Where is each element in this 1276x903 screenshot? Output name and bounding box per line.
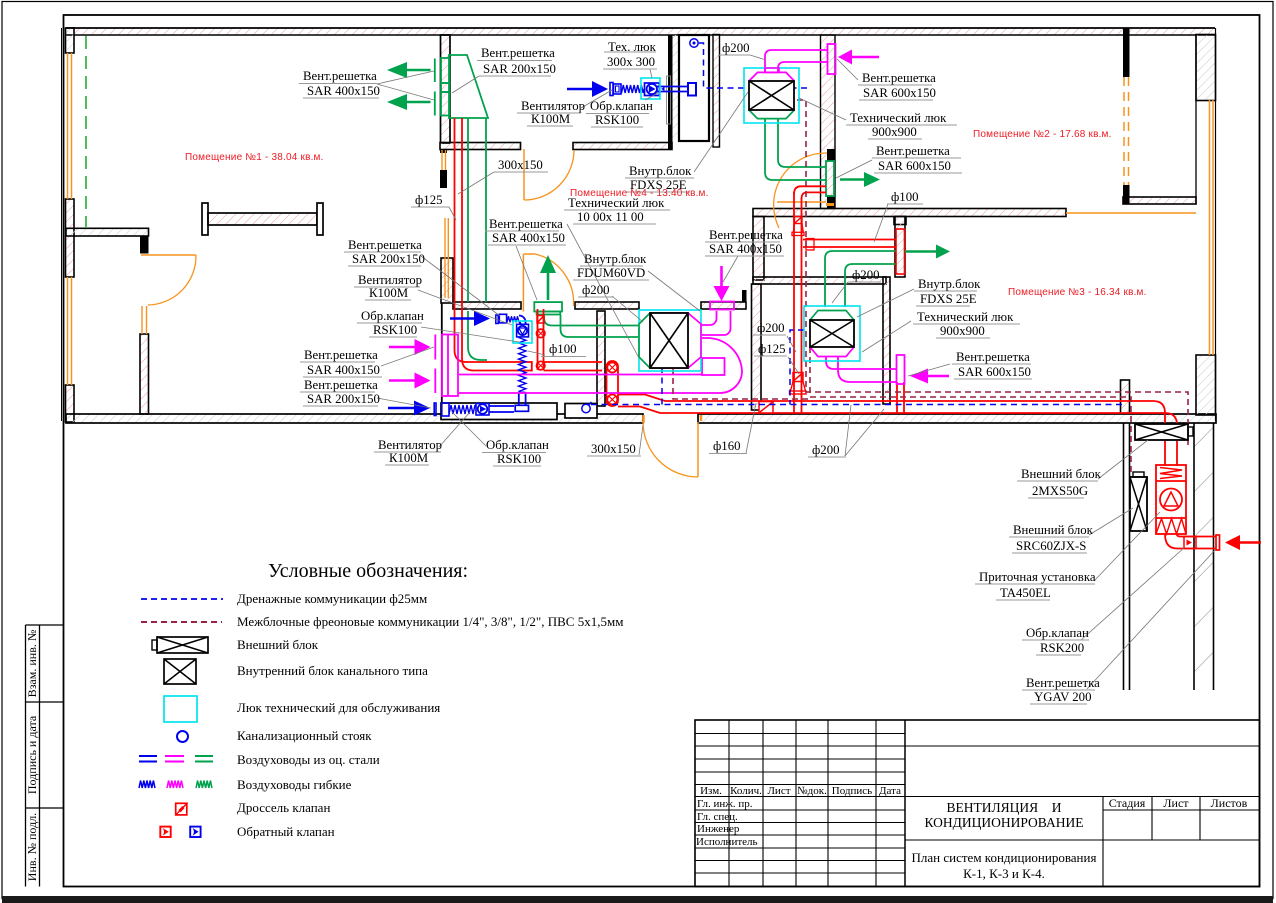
svg-text:RSK200: RSK200 <box>1040 641 1084 655</box>
svg-text:Вент.решетка: Вент.решетка <box>489 217 563 231</box>
svg-text:Внешний блок: Внешний блок <box>1021 467 1102 481</box>
svg-text:Вент.решетка: Вент.решетка <box>481 46 555 60</box>
svg-text:ВЕНТИЛЯЦИЯ И: ВЕНТИЛЯЦИЯ И <box>947 800 1062 815</box>
svg-text:Вент.решетка: Вент.решетка <box>304 348 378 362</box>
svg-text:ф125: ф125 <box>758 342 786 356</box>
svg-text:Вент.решетка: Вент.решетка <box>709 228 783 242</box>
svg-text:Технический люк: Технический люк <box>850 111 947 125</box>
svg-text:SAR 400x150: SAR 400x150 <box>709 242 782 256</box>
svg-text:Вент.решетка: Вент.решетка <box>1026 676 1100 690</box>
svg-text:RSK100: RSK100 <box>497 452 541 466</box>
svg-text:Помещение №1 - 38.04 кв.м.: Помещение №1 - 38.04 кв.м. <box>185 152 324 163</box>
svg-text:Межблочные фреоновые коммуника: Межблочные фреоновые коммуникации 1/4", … <box>237 614 623 629</box>
svg-text:ф200: ф200 <box>757 321 785 335</box>
svg-text:Внутр.блок: Внутр.блок <box>584 252 647 266</box>
svg-text:Технический люк: Технический люк <box>917 310 1014 324</box>
svg-text:Люк технический для обслуживан: Люк технический для обслуживания <box>237 700 440 715</box>
svg-text:Вентилятор: Вентилятор <box>358 273 422 287</box>
svg-text:YGAV 200: YGAV 200 <box>1034 690 1091 704</box>
svg-text:ф100: ф100 <box>549 342 577 356</box>
svg-text:300x150: 300x150 <box>498 158 543 172</box>
svg-text:Вент.решетка: Вент.решетка <box>956 350 1030 364</box>
svg-text:Вент.решетка: Вент.решетка <box>304 378 378 392</box>
svg-text:SAR 600x150: SAR 600x150 <box>878 159 951 173</box>
svg-text:900x900: 900x900 <box>940 324 985 338</box>
svg-text:К100М: К100М <box>369 286 408 300</box>
svg-text:ф100: ф100 <box>891 190 919 204</box>
svg-text:SAR 600x150: SAR 600x150 <box>958 365 1031 379</box>
svg-text:10 00x 11 00: 10 00x 11 00 <box>577 210 644 224</box>
svg-text:Подпись: Подпись <box>832 785 872 797</box>
svg-text:Помещение №2 - 17.68 кв.м.: Помещение №2 - 17.68 кв.м. <box>973 129 1112 140</box>
svg-text:Дата: Дата <box>879 785 901 797</box>
svg-text:Листов: Листов <box>1211 796 1248 810</box>
svg-text:Изм.: Изм. <box>700 785 722 797</box>
svg-text:План систем кондиционирования: План систем кондиционирования <box>912 850 1097 865</box>
svg-text:SAR 400x150: SAR 400x150 <box>492 231 565 245</box>
svg-text:TA450EL: TA450EL <box>1000 586 1051 600</box>
svg-text:Воздуховоды гибкие: Воздуховоды гибкие <box>237 777 352 792</box>
svg-text:Лист: Лист <box>767 785 790 797</box>
svg-text:К100М: К100М <box>531 112 570 126</box>
svg-text:Вент.решетка: Вент.решетка <box>303 69 377 83</box>
svg-text:№док.: №док. <box>797 785 827 797</box>
svg-text:ф125: ф125 <box>415 193 443 207</box>
svg-text:300x 300: 300x 300 <box>607 55 655 69</box>
svg-text:Канализационный стояк: Канализационный стояк <box>237 728 372 743</box>
svg-text:Внутренний блок канального тип: Внутренний блок канального типа <box>237 663 428 678</box>
svg-text:ф200: ф200 <box>852 268 880 282</box>
svg-text:Обр.клапан: Обр.клапан <box>590 99 653 113</box>
svg-text:Стадия: Стадия <box>1109 796 1146 810</box>
svg-text:SAR 400x150: SAR 400x150 <box>307 363 380 377</box>
svg-text:FDUM60VD: FDUM60VD <box>577 266 645 280</box>
svg-text:RSK100: RSK100 <box>595 113 639 127</box>
svg-text:Вент.решетка: Вент.решетка <box>348 238 422 252</box>
svg-text:Внутр.блок: Внутр.блок <box>918 277 981 291</box>
svg-text:Подпись и дата: Подпись и дата <box>25 715 39 794</box>
svg-text:Вентилятор: Вентилятор <box>378 438 442 452</box>
svg-text:Гл. спец.: Гл. спец. <box>697 811 738 823</box>
svg-text:ф200: ф200 <box>812 443 840 457</box>
svg-text:SAR 200x150: SAR 200x150 <box>352 252 425 266</box>
svg-text:Исполнитель: Исполнитель <box>696 836 758 848</box>
svg-text:Гл. инж. пр.: Гл. инж. пр. <box>697 798 753 810</box>
svg-text:SAR 200x150: SAR 200x150 <box>483 62 556 76</box>
svg-text:Условные обозначения:: Условные обозначения: <box>268 560 468 582</box>
svg-text:RSK100: RSK100 <box>373 323 417 337</box>
svg-text:Обр.клапан: Обр.клапан <box>486 438 549 452</box>
svg-text:FDXS 25E: FDXS 25E <box>920 292 977 306</box>
svg-text:SAR 400x150: SAR 400x150 <box>307 84 380 98</box>
svg-text:Лист: Лист <box>1163 796 1189 810</box>
svg-text:ф200: ф200 <box>582 283 610 297</box>
svg-text:Вент.решетка: Вент.решетка <box>862 71 936 85</box>
svg-text:КОНДИЦИОНИРОВАНИЕ: КОНДИЦИОНИРОВАНИЕ <box>925 815 1084 830</box>
svg-text:ф200: ф200 <box>722 41 750 55</box>
svg-text:900x900: 900x900 <box>872 125 917 139</box>
svg-text:SAR 600x150: SAR 600x150 <box>863 86 936 100</box>
svg-text:К-1, К-3 и К-4.: К-1, К-3 и К-4. <box>963 866 1045 881</box>
svg-text:Воздуховоды из оц. стали: Воздуховоды из оц. стали <box>237 752 380 767</box>
svg-text:Инженер: Инженер <box>697 823 740 835</box>
svg-text:Взам. инв. №: Взам. инв. № <box>25 630 39 698</box>
svg-text:2MXS50G: 2MXS50G <box>1032 484 1088 498</box>
svg-text:Инв. № подл.: Инв. № подл. <box>25 813 39 881</box>
svg-text:Внешний блок: Внешний блок <box>237 637 319 652</box>
svg-text:Обратный клапан: Обратный клапан <box>237 824 335 839</box>
svg-text:Приточная установка: Приточная установка <box>979 570 1096 584</box>
svg-text:Дроссель клапан: Дроссель клапан <box>237 800 330 815</box>
svg-text:Вентилятор: Вентилятор <box>521 99 585 113</box>
svg-text:Обр.клапан: Обр.клапан <box>361 309 424 323</box>
svg-text:Внешний блок: Внешний блок <box>1013 523 1094 537</box>
svg-text:Обр.клапан: Обр.клапан <box>1026 626 1089 640</box>
svg-text:ф160: ф160 <box>713 439 741 453</box>
svg-text:Помещение №3 - 16.34 кв.м.: Помещение №3 - 16.34 кв.м. <box>1008 287 1147 298</box>
svg-text:Внутр.блок: Внутр.блок <box>629 164 692 178</box>
svg-text:К100М: К100М <box>389 451 428 465</box>
svg-text:Колич.: Колич. <box>730 785 762 797</box>
svg-text:300x150: 300x150 <box>591 442 636 456</box>
svg-text:SAR 200x150: SAR 200x150 <box>307 392 380 406</box>
svg-text:Помещение №4 - 13.40 кв.м.: Помещение №4 - 13.40 кв.м. <box>570 188 709 199</box>
svg-text:SRC60ZJX-S: SRC60ZJX-S <box>1016 539 1086 553</box>
svg-text:Дренажные коммуникации ф25мм: Дренажные коммуникации ф25мм <box>237 591 427 606</box>
svg-text:Вент.решетка: Вент.решетка <box>876 144 950 158</box>
svg-text:Тех. люк: Тех. люк <box>608 40 657 54</box>
